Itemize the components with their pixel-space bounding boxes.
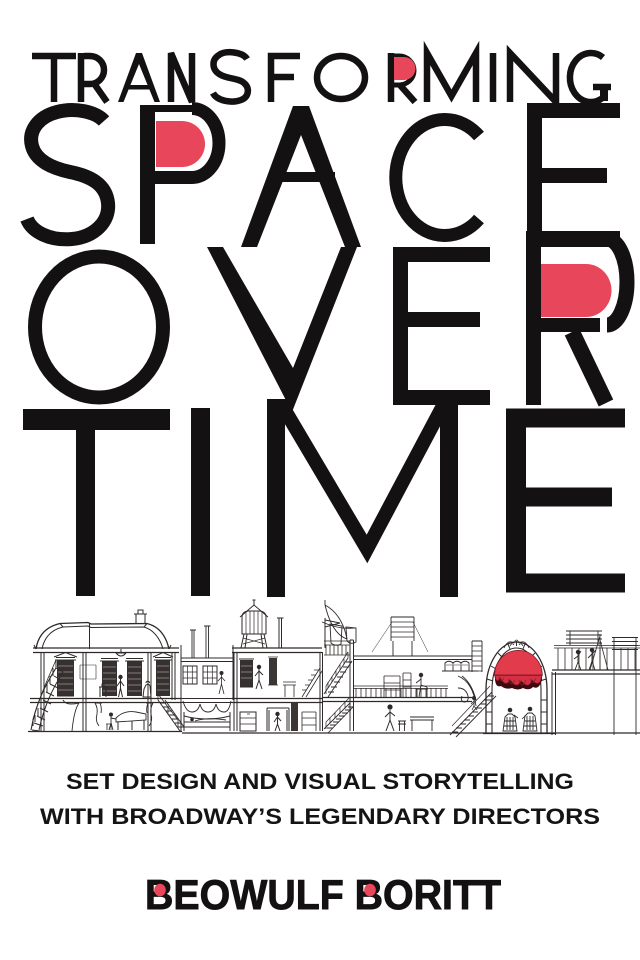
svg-text:WITH BROADWAY’S LEGENDARY DIRE: WITH BROADWAY’S LEGENDARY DIRECTORS bbox=[40, 804, 600, 829]
svg-text:SET DESIGN AND VISUAL STORYTEL: SET DESIGN AND VISUAL STORYTELLING bbox=[66, 769, 574, 794]
svg-text:BEOWULF BORITT: BEOWULF BORITT bbox=[145, 871, 501, 918]
